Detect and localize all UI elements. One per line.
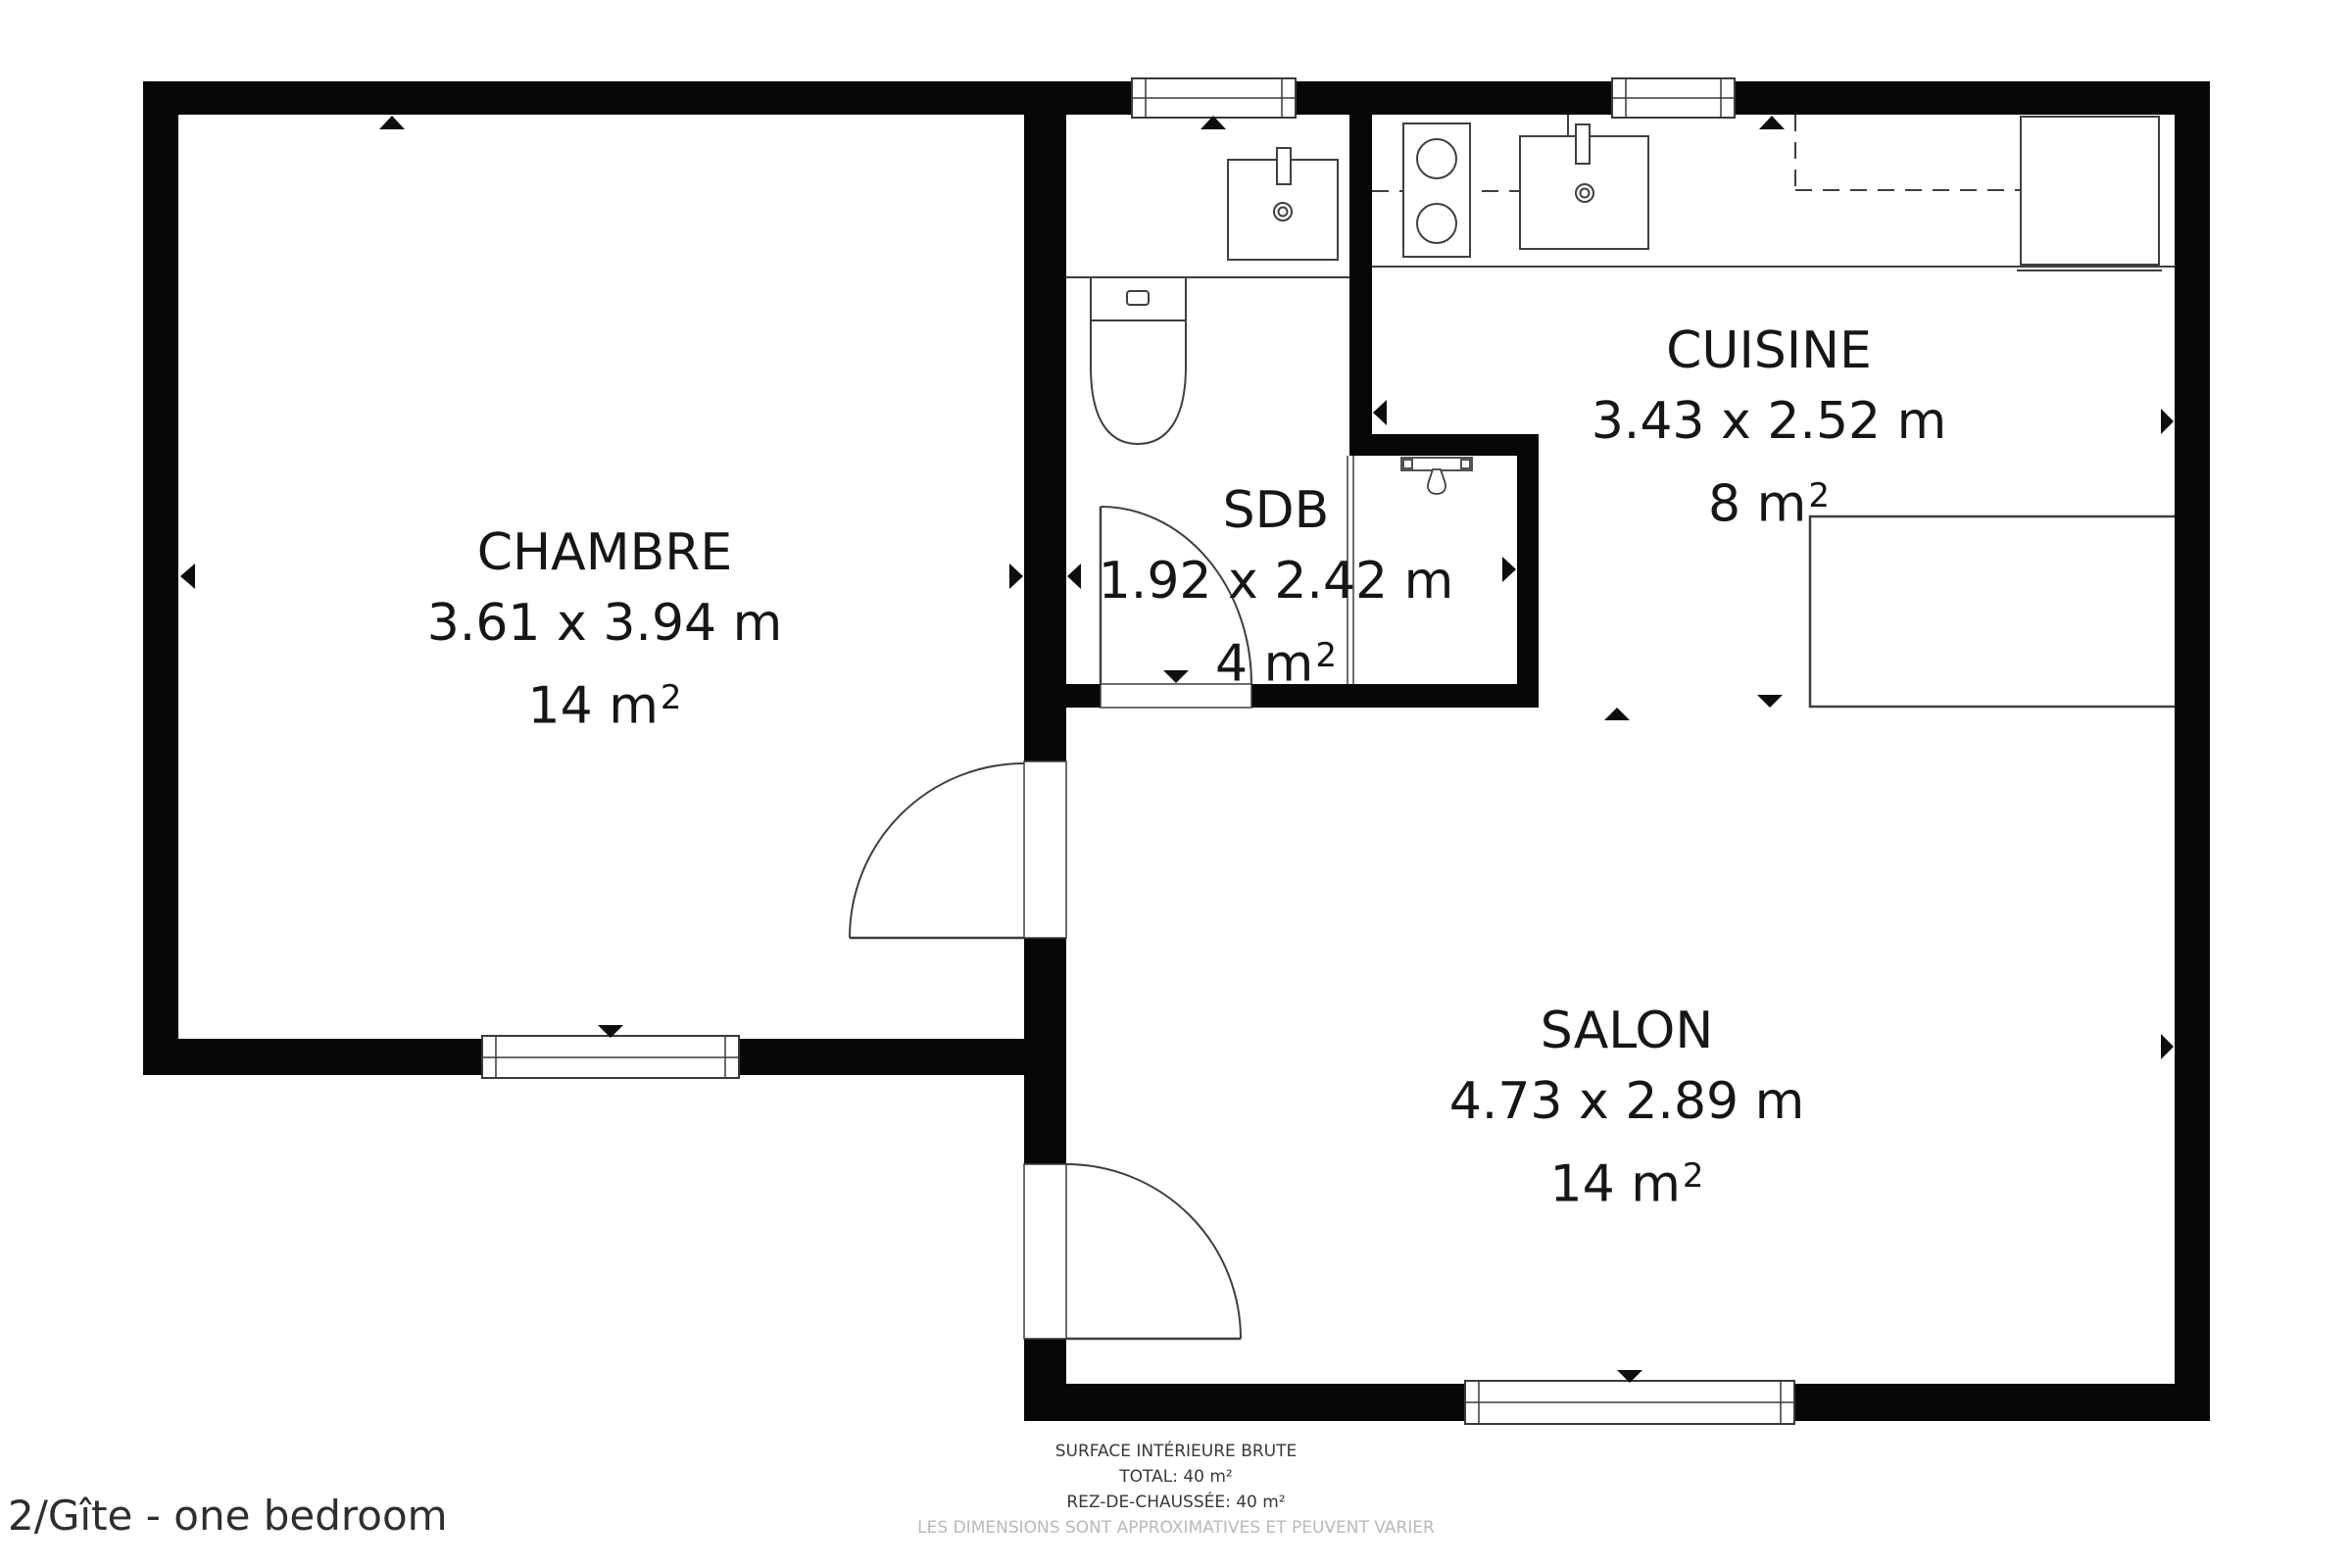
wall-marker-icon [2161,1034,2174,1059]
room-label-sdb: SDB 1.92 x 2.42 m 4 m2 [1099,475,1454,699]
room-area-value: 8 m [1708,474,1806,533]
toilet-icon [1091,277,1186,444]
wall-right [2175,81,2210,1421]
room-area-sdb: 4 m2 [1099,616,1454,699]
room-area-value: 14 m [527,676,658,735]
wall-left [143,81,178,1075]
kitchen-sink-icon [1520,124,1648,249]
room-area-sup: 2 [661,678,682,717]
wall-sdb-kitchen [1349,115,1372,456]
room-area-sup: 2 [1683,1156,1704,1196]
wall-marker-icon [1757,695,1783,708]
room-area-value: 4 m [1215,634,1313,693]
wall-marker-icon [1067,563,1081,589]
window-icon-kitchen-top [1612,78,1735,118]
room-dimensions-sdb: 1.92 x 2.42 m [1099,546,1454,616]
wall-marker-icon [180,563,195,589]
room-dimensions-salon: 4.73 x 2.89 m [1449,1066,1805,1137]
surface-total: TOTAL: 40 m² [917,1464,1435,1490]
room-name-chambre: CHAMBRE [427,517,783,588]
stove-icon [1403,123,1470,257]
room-area-cuisine: 8 m2 [1592,457,1947,539]
floor-plan-canvas: CHAMBRE 3.61 x 3.94 m 14 m2 SDB 1.92 x 2… [0,0,2352,1568]
wall-marker-icon [1604,708,1630,720]
surface-disclaimer: LES DIMENSIONS SONT APPROXIMATIVES ET PE… [917,1515,1435,1541]
wall-shower-top [1349,434,1539,456]
wall-marker-icon [1759,116,1785,129]
room-label-chambre: CHAMBRE 3.61 x 3.94 m 14 m2 [427,517,783,741]
fridge-icon [2021,117,2159,265]
room-area-chambre: 14 m2 [427,659,783,741]
surface-ground-floor: REZ-DE-CHAUSSÉE: 40 m² [917,1490,1435,1515]
room-area-sup: 2 [1315,636,1337,675]
wall-marker-icon [379,116,405,129]
page-title: 2/Gîte - one bedroom [8,1492,448,1540]
door-swing-icon-chambre [850,761,1066,938]
room-label-cuisine: CUISINE 3.43 x 2.52 m 8 m2 [1592,316,1947,539]
surface-summary-heading: SURFACE INTÉRIEURE BRUTE [917,1439,1435,1464]
room-area-value: 14 m [1549,1154,1680,1213]
wall-marker-icon [2161,409,2174,434]
wall-marker-icon [1502,557,1516,582]
wall-marker-icon [1009,563,1023,589]
window-icon-chambre-bottom [482,1036,739,1078]
room-area-salon: 14 m2 [1449,1137,1805,1219]
room-name-salon: SALON [1449,996,1805,1066]
room-area-sup: 2 [1808,476,1830,515]
wall-shower-right [1517,434,1539,708]
window-icon-sdb-top [1132,78,1296,118]
door-swing-icon-salon [1024,1164,1241,1339]
room-dimensions-chambre: 3.61 x 3.94 m [427,588,783,659]
surface-summary: SURFACE INTÉRIEURE BRUTE TOTAL: 40 m² RE… [917,1439,1435,1541]
room-dimensions-cuisine: 3.43 x 2.52 m [1592,386,1947,457]
room-name-cuisine: CUISINE [1592,316,1947,386]
room-name-sdb: SDB [1099,475,1454,546]
bathroom-sink-icon [1228,148,1338,260]
room-label-salon: SALON 4.73 x 2.89 m 14 m2 [1449,996,1805,1219]
wall-marker-icon [1373,400,1387,425]
window-icon-salon-bottom [1465,1381,1794,1424]
floor-plan-drawing [0,0,2352,1568]
table-icon [1810,516,2177,707]
